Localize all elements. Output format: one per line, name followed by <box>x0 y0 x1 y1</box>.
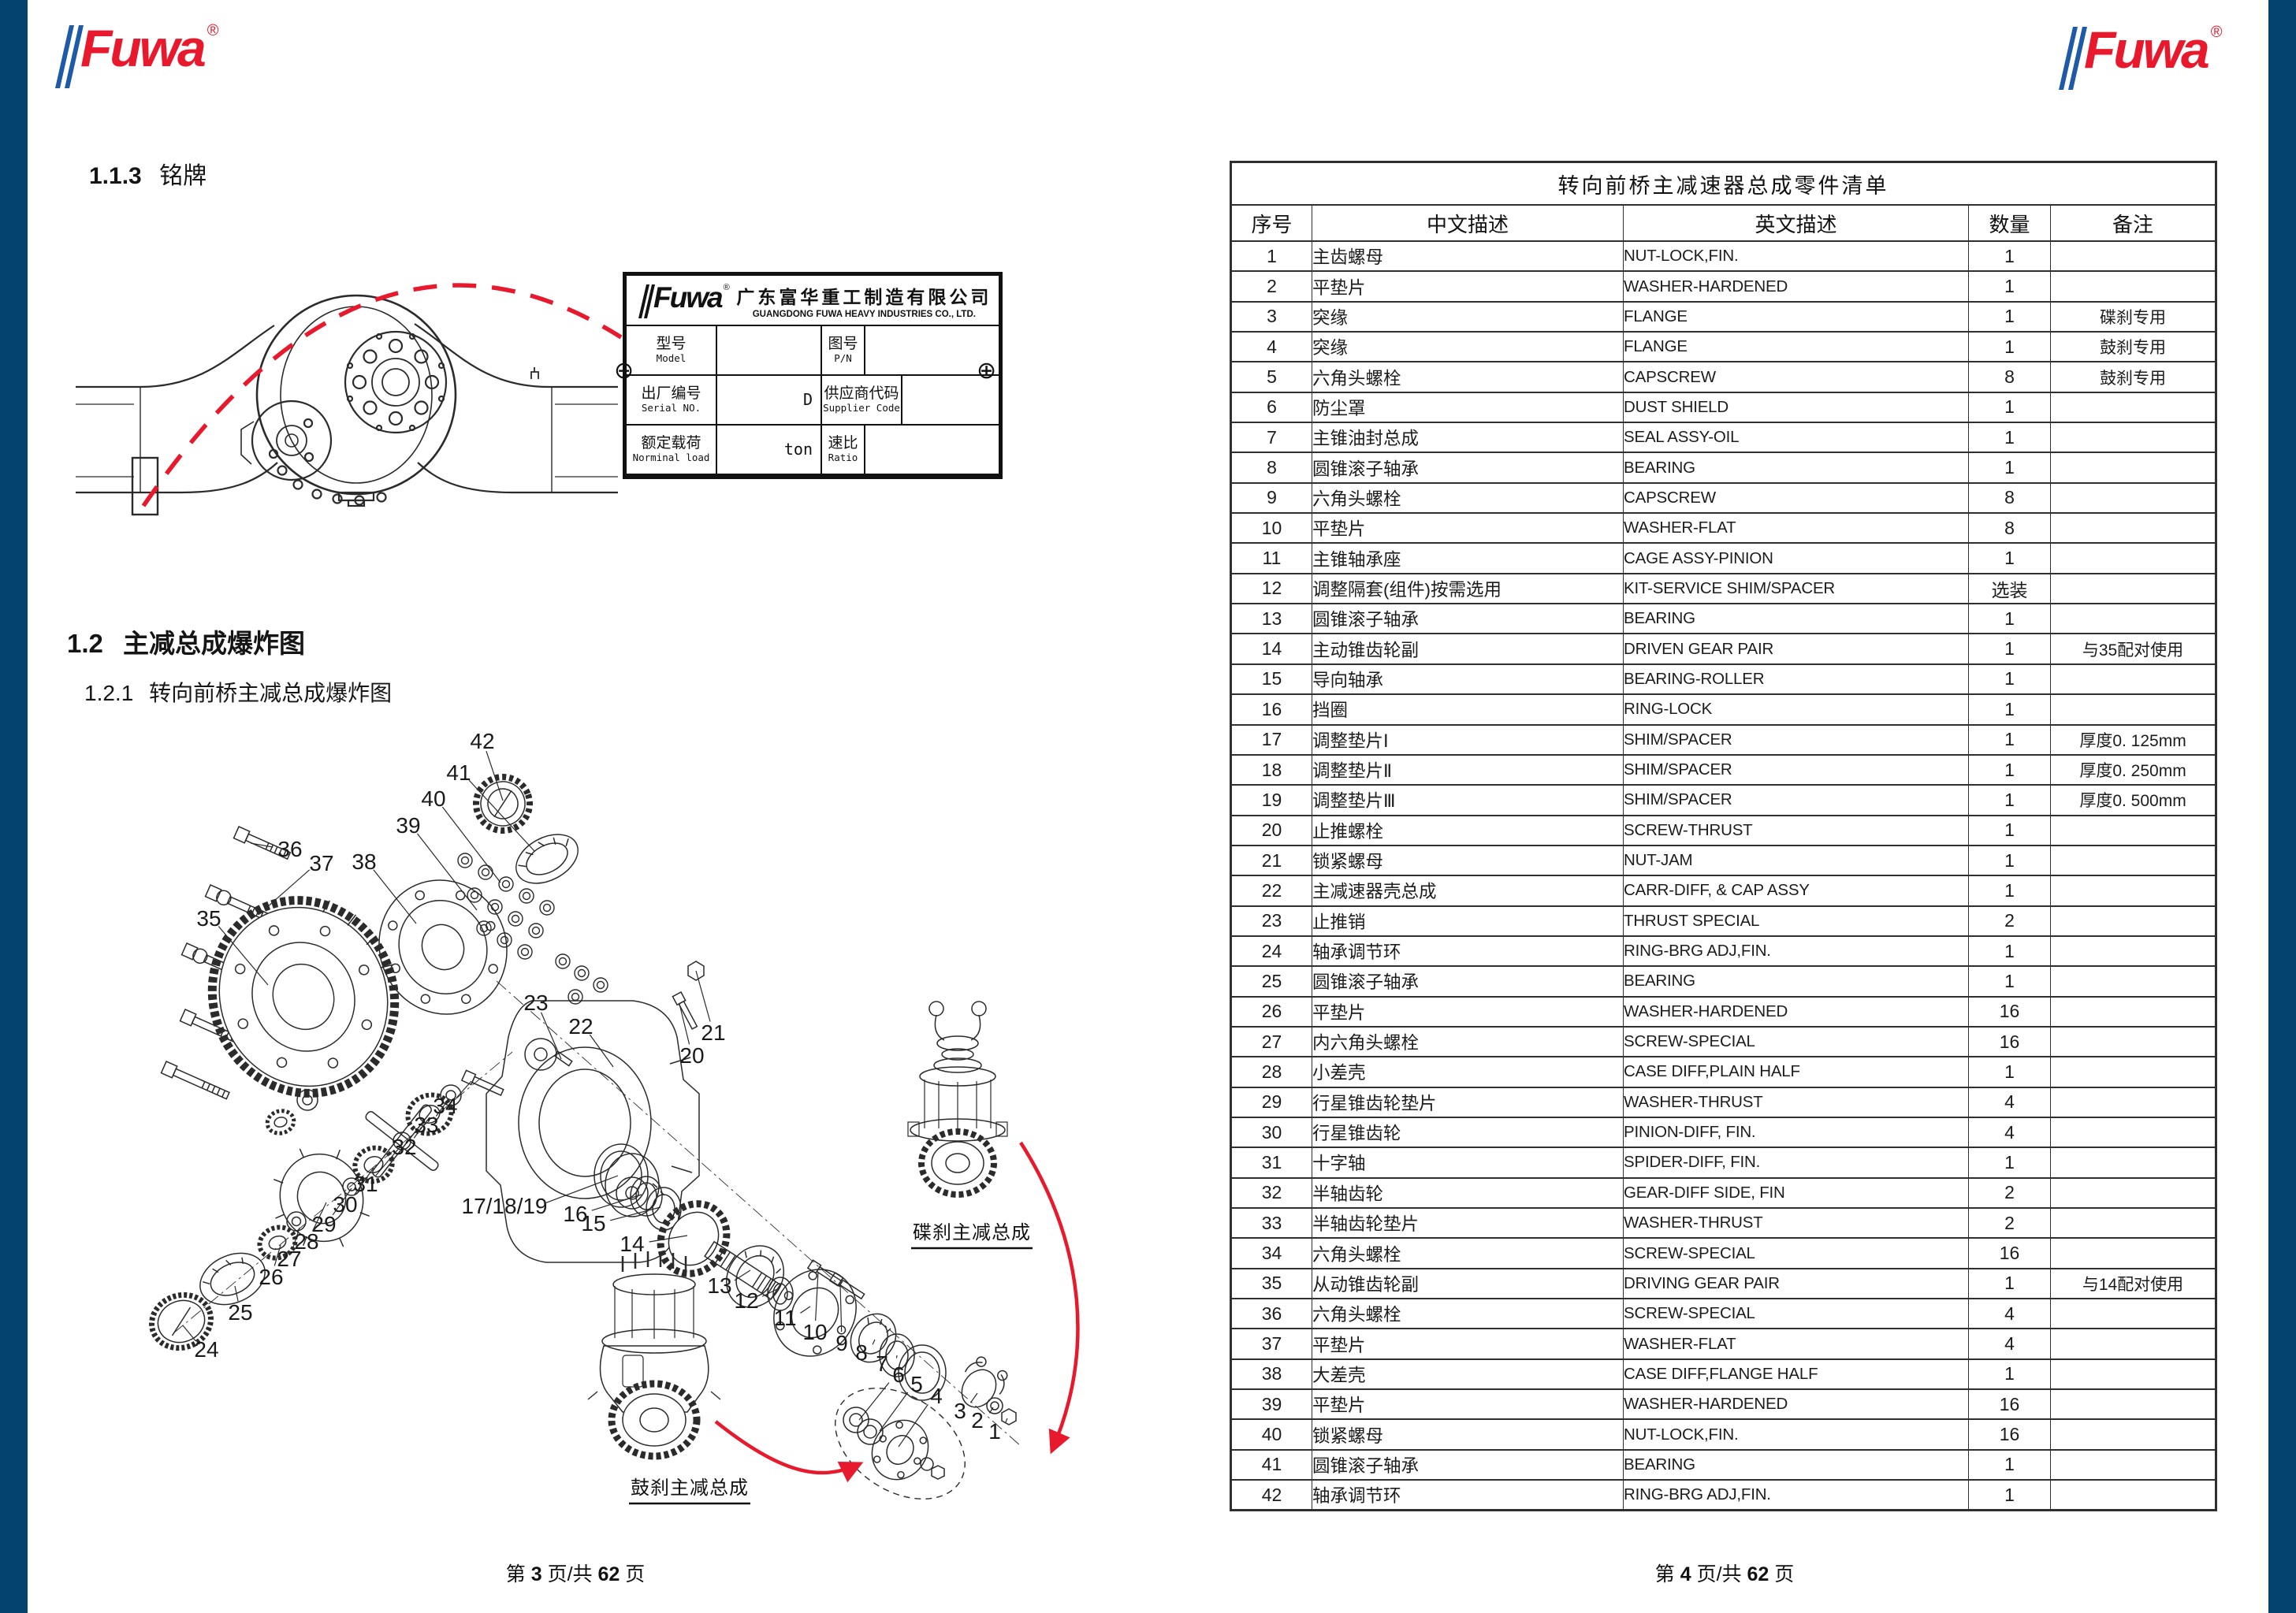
cell-qty: 1 <box>1969 1450 2051 1480</box>
cell-qty: 1 <box>1969 816 2051 846</box>
cell-en: WASHER-HARDENED <box>1624 997 1969 1027</box>
table-row: 38大差壳CASE DIFF,FLANGE HALF1 <box>1231 1359 2216 1389</box>
cell-qty: 1 <box>1969 392 2051 422</box>
cell-no: 9 <box>1231 483 1312 513</box>
cell-rk <box>2051 422 2216 452</box>
cell-qty: 1 <box>1969 1480 2051 1510</box>
cell-qty: 1 <box>1969 875 2051 905</box>
callout-leader <box>486 751 503 801</box>
cell-no: 25 <box>1231 966 1312 996</box>
table-row: 42轴承调节环RING-BRG ADJ,FIN.1 <box>1231 1480 2216 1510</box>
load-label: 额定载荷Norminal load <box>627 426 717 474</box>
cell-rk <box>2051 966 2216 996</box>
nameplate-location-rect <box>132 458 158 515</box>
table-row: 18调整垫片ⅡSHIM/SPACER1厚度0. 250mm <box>1231 755 2216 785</box>
cell-en: DRIVING GEAR PAIR <box>1624 1269 1969 1299</box>
table-row: 19调整垫片ⅢSHIM/SPACER1厚度0. 500mm <box>1231 785 2216 815</box>
cell-cn: 行星锥齿轮 <box>1312 1117 1624 1147</box>
cell-qty: 1 <box>1969 1057 2051 1087</box>
callout-5: 5 <box>910 1372 923 1396</box>
cell-cn: 轴承调节环 <box>1312 1480 1624 1510</box>
cell-rk: 与35配对使用 <box>2051 634 2216 663</box>
cell-en: BEARING-ROLLER <box>1624 664 1969 694</box>
cell-no: 13 <box>1231 604 1312 634</box>
cell-qty: 1 <box>1969 664 2051 694</box>
table-row: 26平垫片WASHER-HARDENED16 <box>1231 997 2216 1027</box>
drum-flange-cluster <box>815 1366 985 1522</box>
cell-qty: 1 <box>1969 694 2051 724</box>
callout-leader <box>374 870 416 924</box>
callout-leader <box>970 1393 977 1403</box>
cell-qty: 1 <box>1969 332 2051 362</box>
cell-qty: 选装 <box>1969 574 2051 604</box>
cell-cn: 行星锥齿轮垫片 <box>1312 1087 1624 1117</box>
callout-38: 38 <box>352 849 376 874</box>
cell-en: BEARING <box>1624 966 1969 996</box>
cell-en: NUT-LOCK,FIN. <box>1624 1419 1969 1449</box>
cell-no: 11 <box>1231 543 1312 573</box>
cell-no: 7 <box>1231 422 1312 452</box>
disc-red-arrow <box>1021 1143 1077 1450</box>
cell-no: 32 <box>1231 1178 1312 1208</box>
cell-cn: 半轴齿轮垫片 <box>1312 1208 1624 1238</box>
cell-en: SCREW-SPECIAL <box>1624 1238 1969 1268</box>
fuwa-logo-stripes-icon <box>2051 24 2082 91</box>
cell-qty: 16 <box>1969 997 2051 1027</box>
table-row: 30行星锥齿轮PINION-DIFF, FIN.4 <box>1231 1117 2216 1147</box>
fuwa-logo-right: Fuwa ® <box>2051 24 2222 91</box>
cell-rk <box>2051 483 2216 513</box>
callout-24: 24 <box>194 1337 218 1362</box>
cell-qty: 16 <box>1969 1238 2051 1268</box>
cell-en: SCREW-SPECIAL <box>1624 1299 1969 1329</box>
cell-qty: 1 <box>1969 1147 2051 1177</box>
callout-20: 20 <box>679 1043 704 1068</box>
cell-cn: 从动锥齿轮副 <box>1312 1269 1624 1299</box>
cell-cn: 调整隔套(组件)按需选用 <box>1312 574 1624 604</box>
cell-no: 2 <box>1231 271 1312 301</box>
callout-30: 30 <box>333 1192 357 1217</box>
callout-8: 8 <box>855 1340 868 1365</box>
cell-no: 33 <box>1231 1208 1312 1238</box>
cell-rk <box>2051 392 2216 422</box>
cell-rk <box>2051 574 2216 604</box>
fuwa-logo-stripes-icon <box>47 22 79 90</box>
cell-en: CARR-DIFF, & CAP ASSY <box>1624 875 1969 905</box>
cell-qty: 2 <box>1969 1208 2051 1238</box>
table-row: 22主减速器壳总成CARR-DIFF, & CAP ASSY1 <box>1231 875 2216 905</box>
cell-en: RING-BRG ADJ,FIN. <box>1624 1480 1969 1510</box>
section-number: 1.1.3 <box>89 163 142 189</box>
cell-no: 27 <box>1231 1027 1312 1057</box>
table-row: 21锁紧螺母NUT-JAM1 <box>1231 846 2216 875</box>
axle-housing-figure <box>71 217 623 575</box>
cell-qty: 16 <box>1969 1027 2051 1057</box>
table-row: 25圆锥滚子轴承BEARING1 <box>1231 966 2216 996</box>
cell-no: 10 <box>1231 513 1312 543</box>
cell-qty: 1 <box>1969 302 2051 332</box>
callout-42: 42 <box>470 729 494 753</box>
cell-qty: 8 <box>1969 483 2051 513</box>
table-row: 24轴承调节环RING-BRG ADJ,FIN.1 <box>1231 936 2216 966</box>
cell-qty: 4 <box>1969 1299 2051 1329</box>
cell-en: GEAR-DIFF SIDE, FIN <box>1624 1178 1969 1208</box>
cell-en: RING-BRG ADJ,FIN. <box>1624 936 1969 966</box>
fuwa-logo-stripes-icon <box>634 283 653 319</box>
registered-mark: ® <box>724 283 730 292</box>
nameplate-fuwa-logo: Fuwa ® <box>634 283 730 319</box>
cell-no: 35 <box>1231 1269 1312 1299</box>
plate-row-serial: 出厂编号Serial NO. D 供应商代码Supplier Code <box>627 376 999 426</box>
cell-no: 14 <box>1231 634 1312 663</box>
plate-row-load: 额定载荷Norminal load ton 速比Ratio <box>627 426 999 475</box>
nameplate: Fuwa ® 广东富华重工制造有限公司 GUANGDONG FUWA HEAVY… <box>623 272 1003 479</box>
section-title: 铭牌 <box>159 163 207 189</box>
cell-rk: 碟刹专用 <box>2051 302 2216 332</box>
callout-6: 6 <box>892 1362 905 1387</box>
cell-no: 40 <box>1231 1419 1312 1449</box>
callout-9: 9 <box>835 1331 848 1355</box>
nameplate-header: Fuwa ® 广东富华重工制造有限公司 GUANGDONG FUWA HEAVY… <box>627 276 999 326</box>
pn-label: 图号P/N <box>822 326 865 374</box>
cell-qty: 8 <box>1969 513 2051 543</box>
ratio-label: 速比Ratio <box>822 426 865 474</box>
cell-cn: 防尘罩 <box>1312 392 1624 422</box>
cell-en: BEARING <box>1624 604 1969 634</box>
cell-qty: 4 <box>1969 1329 2051 1358</box>
cell-rk <box>2051 452 2216 482</box>
cell-rk <box>2051 241 2216 271</box>
cell-rk: 厚度0. 250mm <box>2051 755 2216 785</box>
exploded-diagram: 碟刹主减总成 鼓刹主减总成 42414039383736352322212034… <box>71 725 1190 1544</box>
fuwa-wordmark: Fuwa <box>2084 24 2208 76</box>
cell-cn: 小差壳 <box>1312 1057 1624 1087</box>
cell-rk <box>2051 1238 2216 1268</box>
cell-en: CAGE ASSY-PINION <box>1624 543 1969 573</box>
cell-qty: 2 <box>1969 1178 2051 1208</box>
cell-cn: 圆锥滚子轴承 <box>1312 966 1624 996</box>
cell-rk <box>2051 1419 2216 1449</box>
cell-en: BEARING <box>1624 1450 1969 1480</box>
drum-assembly-label: 鼓刹主减总成 <box>631 1477 749 1499</box>
parts-table: 转向前桥主减速器总成零件清单 序号 中文描述 英文描述 数量 备注 1主齿螺母N… <box>1230 161 2217 1511</box>
cell-en: WASHER-HARDENED <box>1624 271 1969 301</box>
cell-rk <box>2051 664 2216 694</box>
cell-qty: 16 <box>1969 1419 2051 1449</box>
cell-no: 36 <box>1231 1299 1312 1329</box>
cell-en: BEARING <box>1624 452 1969 482</box>
callout-35: 35 <box>196 906 221 931</box>
cell-qty: 1 <box>1969 725 2051 755</box>
cell-en: DRIVEN GEAR PAIR <box>1624 634 1969 663</box>
cell-no: 28 <box>1231 1057 1312 1087</box>
callout-leader <box>896 1355 897 1358</box>
cell-rk <box>2051 1027 2216 1057</box>
callout-2: 2 <box>971 1408 984 1433</box>
cell-en: WASHER-HARDENED <box>1624 1389 1969 1419</box>
cell-rk: 鼓刹专用 <box>2051 332 2216 362</box>
cell-rk <box>2051 997 2216 1027</box>
cell-rk <box>2051 1389 2216 1419</box>
table-row: 7主锥油封总成SEAL ASSY-OIL1 <box>1231 422 2216 452</box>
callout-7: 7 <box>876 1351 888 1376</box>
registered-mark: ® <box>207 22 219 40</box>
table-row: 11主锥轴承座CAGE ASSY-PINION1 <box>1231 543 2216 573</box>
cell-qty: 1 <box>1969 785 2051 815</box>
table-row: 1主齿螺母NUT-LOCK,FIN.1 <box>1231 241 2216 271</box>
callout-leader <box>417 834 477 910</box>
table-row: 28小差壳CASE DIFF,PLAIN HALF1 <box>1231 1057 2216 1087</box>
callout-17/18/19: 17/18/19 <box>462 1194 548 1218</box>
cell-en: FLANGE <box>1624 302 1969 332</box>
cell-en: SCREW-SPECIAL <box>1624 1027 1969 1057</box>
section-1-1-3-heading: 1.1.3 铭牌 <box>89 156 207 191</box>
lock-nut-1 <box>1002 1409 1016 1425</box>
cell-en: SHIM/SPACER <box>1624 725 1969 755</box>
col-header-no: 序号 <box>1231 205 1312 241</box>
serial-label: 出厂编号Serial NO. <box>627 376 717 424</box>
callout-leader <box>840 1284 842 1332</box>
callout-11: 11 <box>773 1306 796 1330</box>
table-row: 2平垫片WASHER-HARDENED1 <box>1231 271 2216 301</box>
cell-qty: 1 <box>1969 846 2051 875</box>
drum-red-arrow <box>716 1422 859 1473</box>
cell-qty: 1 <box>1969 452 2051 482</box>
cell-no: 21 <box>1231 846 1312 875</box>
cell-no: 1 <box>1231 241 1312 271</box>
cell-no: 20 <box>1231 816 1312 846</box>
cell-cn: 锁紧螺母 <box>1312 1419 1624 1449</box>
callout-32: 32 <box>392 1135 416 1159</box>
cell-no: 41 <box>1231 1450 1312 1480</box>
cell-qty: 1 <box>1969 936 2051 966</box>
table-row: 27内六角头螺栓SCREW-SPECIAL16 <box>1231 1027 2216 1057</box>
cell-qty: 2 <box>1969 906 2051 936</box>
cell-en: SEAL ASSY-OIL <box>1624 422 1969 452</box>
cell-en: SHIM/SPACER <box>1624 755 1969 785</box>
cell-no: 15 <box>1231 664 1312 694</box>
cell-no: 22 <box>1231 875 1312 905</box>
cell-no: 5 <box>1231 362 1312 392</box>
cell-qty: 1 <box>1969 604 2051 634</box>
section-title: 转向前桥主减总成爆炸图 <box>149 681 392 705</box>
cell-rk <box>2051 513 2216 543</box>
registered-mark: ® <box>2211 24 2223 42</box>
cell-en: RING-LOCK <box>1624 694 1969 724</box>
cell-cn: 六角头螺栓 <box>1312 1299 1624 1329</box>
cell-rk: 与14配对使用 <box>2051 1269 2216 1299</box>
callout-40: 40 <box>421 786 445 811</box>
left-page-footer: 第 3 页/共 62 页 <box>473 1559 678 1587</box>
right-blue-bar <box>2268 0 2296 1613</box>
cell-qty: 8 <box>1969 362 2051 392</box>
callout-3: 3 <box>954 1399 966 1423</box>
table-row: 29行星锥齿轮垫片WASHER-THRUST4 <box>1231 1087 2216 1117</box>
serial-value: D <box>717 376 822 424</box>
table-row: 33半轴齿轮垫片WASHER-THRUST2 <box>1231 1208 2216 1238</box>
cell-qty: 16 <box>1969 1389 2051 1419</box>
cell-qty: 1 <box>1969 634 2051 663</box>
cell-rk <box>2051 694 2216 724</box>
cell-rk <box>2051 271 2216 301</box>
cell-qty: 1 <box>1969 755 2051 785</box>
fuwa-wordmark: Fuwa <box>653 283 722 312</box>
cell-no: 4 <box>1231 332 1312 362</box>
table-row: 32半轴齿轮GEAR-DIFF SIDE, FIN2 <box>1231 1178 2216 1208</box>
table-row: 9六角头螺栓CAPSCREW8 <box>1231 483 2216 513</box>
cell-rk <box>2051 1299 2216 1329</box>
cell-rk <box>2051 1329 2216 1358</box>
cell-cn: 主减速器壳总成 <box>1312 875 1624 905</box>
cell-rk <box>2051 906 2216 936</box>
left-blue-bar <box>0 0 28 1613</box>
supplier-label: 供应商代码Supplier Code <box>822 376 902 424</box>
cell-rk <box>2051 1480 2216 1510</box>
cell-cn: 突缘 <box>1312 332 1624 362</box>
cell-cn: 导向轴承 <box>1312 664 1624 694</box>
cell-en: SPIDER-DIFF, FIN. <box>1624 1147 1969 1177</box>
table-header-row: 序号 中文描述 英文描述 数量 备注 <box>1231 205 2216 241</box>
callout-1: 1 <box>988 1419 1001 1444</box>
cell-en: SHIM/SPACER <box>1624 785 1969 815</box>
model-value <box>717 326 822 374</box>
callout-41: 41 <box>446 760 471 785</box>
callout-leader <box>696 971 710 1022</box>
cell-rk <box>2051 1147 2216 1177</box>
cell-en: NUT-LOCK,FIN. <box>1624 241 1969 271</box>
cell-rk <box>2051 1117 2216 1147</box>
callout-37: 37 <box>309 851 333 875</box>
table-row: 37平垫片WASHER-FLAT4 <box>1231 1329 2216 1358</box>
cell-cn: 大差壳 <box>1312 1359 1624 1389</box>
col-header-remark: 备注 <box>2051 205 2216 241</box>
callout-21: 21 <box>701 1020 725 1045</box>
table-row: 41圆锥滚子轴承BEARING1 <box>1231 1450 2216 1480</box>
cell-cn: 平垫片 <box>1312 1389 1624 1419</box>
manual-spread: { "page": {"background":"#ffffff","sideb… <box>0 0 2296 1613</box>
table-row: 5六角头螺栓CAPSCREW8鼓刹专用 <box>1231 362 2216 392</box>
table-row: 17调整垫片ⅠSHIM/SPACER1厚度0. 125mm <box>1231 725 2216 755</box>
table-row: 35从动锥齿轮副DRIVING GEAR PAIR1与14配对使用 <box>1231 1269 2216 1299</box>
cell-qty: 1 <box>1969 271 2051 301</box>
cell-no: 18 <box>1231 755 1312 785</box>
cell-rk <box>2051 1087 2216 1117</box>
cell-cn: 圆锥滚子轴承 <box>1312 604 1624 634</box>
cell-en: PINION-DIFF, FIN. <box>1624 1117 1969 1147</box>
cell-no: 30 <box>1231 1117 1312 1147</box>
exploded-drawing <box>144 769 1021 1522</box>
section-1-2-heading: 1.2 主减总成爆炸图 <box>67 623 305 660</box>
cell-en: WASHER-FLAT <box>1624 513 1969 543</box>
table-title-row: 转向前桥主减速器总成零件清单 <box>1231 162 2216 206</box>
cell-en: NUT-JAM <box>1624 846 1969 875</box>
cell-cn: 主齿螺母 <box>1312 241 1624 271</box>
cell-en: WASHER-THRUST <box>1624 1087 1969 1117</box>
cell-no: 29 <box>1231 1087 1312 1117</box>
cell-rk: 厚度0. 500mm <box>2051 785 2216 815</box>
diagram-callouts: 4241403938373635232221203433323130292827… <box>183 729 1007 1447</box>
cell-cn: 调整垫片Ⅰ <box>1312 725 1624 755</box>
cell-cn: 挡圈 <box>1312 694 1624 724</box>
table-row: 4突缘FLANGE1鼓刹专用 <box>1231 332 2216 362</box>
thrust-screw-20 <box>672 992 698 1030</box>
cell-cn: 调整垫片Ⅲ <box>1312 785 1624 815</box>
section-title: 主减总成爆炸图 <box>123 629 305 658</box>
table-row: 14主动锥齿轮副DRIVEN GEAR PAIR1与35配对使用 <box>1231 634 2216 663</box>
cell-rk <box>2051 1359 2216 1389</box>
cell-en: SCREW-THRUST <box>1624 816 1969 846</box>
cell-cn: 平垫片 <box>1312 997 1624 1027</box>
cell-cn: 半轴齿轮 <box>1312 1178 1624 1208</box>
cell-cn: 平垫片 <box>1312 1329 1624 1358</box>
callout-15: 15 <box>581 1211 605 1236</box>
section-number: 1.2.1 <box>84 681 133 705</box>
cell-cn: 平垫片 <box>1312 513 1624 543</box>
cell-no: 17 <box>1231 725 1312 755</box>
registration-cross-right-icon: ⊕ <box>977 359 996 383</box>
cell-en: WASHER-THRUST <box>1624 1208 1969 1238</box>
fuwa-wordmark: Fuwa <box>80 22 204 74</box>
axle-drawing <box>76 295 618 515</box>
right-page-footer: 第 4 页/共 62 页 <box>1622 1559 1827 1587</box>
cell-rk <box>2051 1057 2216 1087</box>
callout-26: 26 <box>259 1265 283 1289</box>
cell-cn: 六角头螺栓 <box>1312 362 1624 392</box>
cell-en: FLANGE <box>1624 332 1969 362</box>
cell-rk <box>2051 846 2216 875</box>
col-header-cn: 中文描述 <box>1312 205 1624 241</box>
table-title: 转向前桥主减速器总成零件清单 <box>1231 162 2216 206</box>
table-row: 23止推销THRUST SPECIAL2 <box>1231 906 2216 936</box>
cell-rk <box>2051 604 2216 634</box>
cell-en: KIT-SERVICE SHIM/SPACER <box>1624 574 1969 604</box>
plate-row-model: 型号Model 图号P/N <box>627 326 999 376</box>
callout-23: 23 <box>523 990 548 1015</box>
col-header-en: 英文描述 <box>1624 205 1969 241</box>
callout-leader <box>590 1035 613 1067</box>
callout-12: 12 <box>734 1288 758 1313</box>
cell-cn: 主动锥齿轮副 <box>1312 634 1624 663</box>
load-unit: ton <box>717 426 822 474</box>
callout-leader <box>1005 1418 1007 1423</box>
cell-qty: 4 <box>1969 1087 2051 1117</box>
table-row: 34六角头螺栓SCREW-SPECIAL16 <box>1231 1238 2216 1268</box>
cell-no: 24 <box>1231 936 1312 966</box>
callout-4: 4 <box>930 1384 943 1408</box>
cell-qty: 4 <box>1969 1117 2051 1147</box>
cell-en: THRUST SPECIAL <box>1624 906 1969 936</box>
cell-no: 8 <box>1231 452 1312 482</box>
cell-cn: 止推销 <box>1312 906 1624 936</box>
parts-table-wrap: 转向前桥主减速器总成零件清单 序号 中文描述 英文描述 数量 备注 1主齿螺母N… <box>1230 161 2217 1511</box>
cell-cn: 圆锥滚子轴承 <box>1312 452 1624 482</box>
callout-leader <box>541 1013 561 1059</box>
cell-no: 42 <box>1231 1480 1312 1510</box>
table-row: 6防尘罩DUST SHIELD1 <box>1231 392 2216 422</box>
cell-en: DUST SHIELD <box>1624 392 1969 422</box>
cell-cn: 主锥轴承座 <box>1312 543 1624 573</box>
cell-no: 39 <box>1231 1389 1312 1419</box>
table-row: 31十字轴SPIDER-DIFF, FIN.1 <box>1231 1147 2216 1177</box>
company-name-cn: 广东富华重工制造有限公司 <box>735 282 994 309</box>
callout-leader <box>880 1392 908 1431</box>
cell-cn: 轴承调节环 <box>1312 936 1624 966</box>
cell-no: 34 <box>1231 1238 1312 1268</box>
model-label: 型号Model <box>627 326 717 374</box>
cell-en: WASHER-FLAT <box>1624 1329 1969 1358</box>
cell-en: CAPSCREW <box>1624 362 1969 392</box>
cell-no: 3 <box>1231 302 1312 332</box>
